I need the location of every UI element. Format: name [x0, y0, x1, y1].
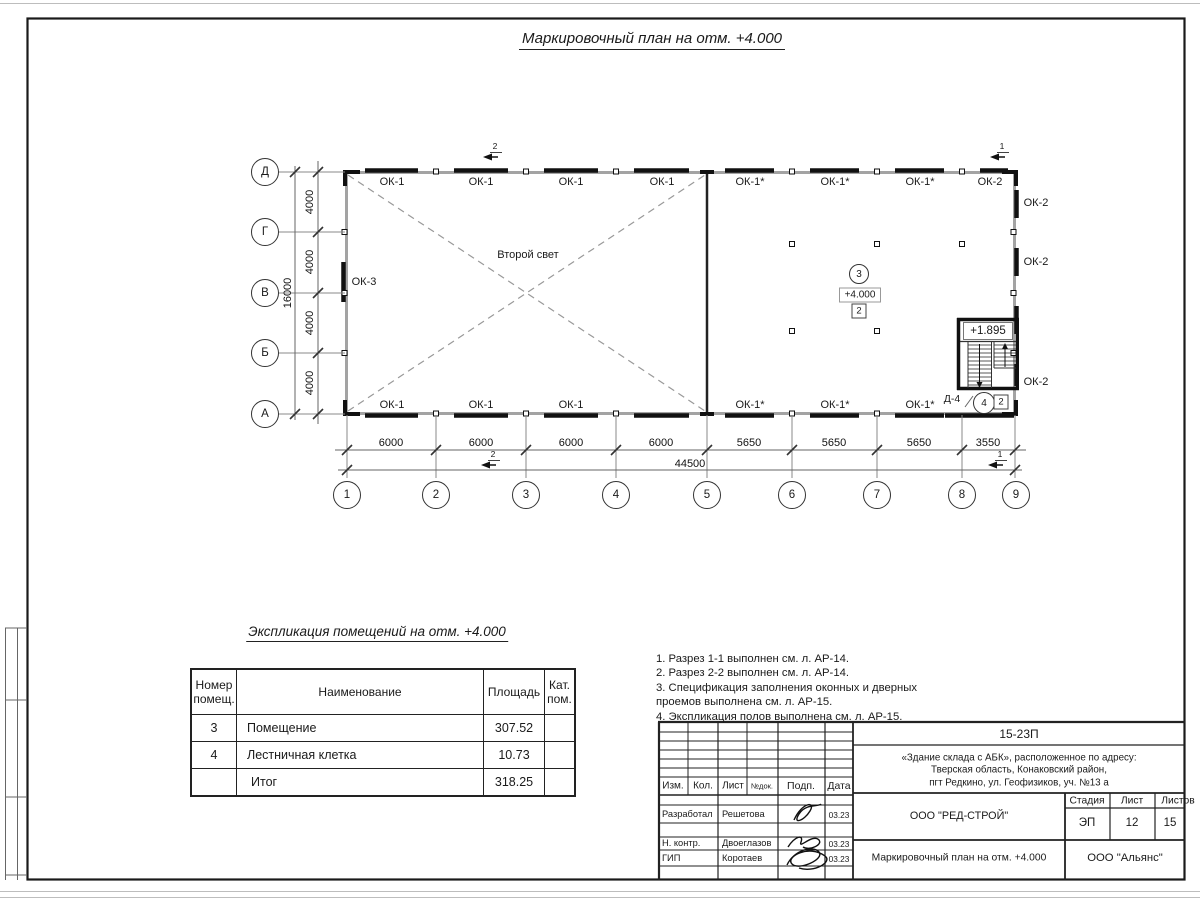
dim-label: 4000: [304, 190, 316, 214]
stair-elevation: +1.895: [963, 322, 1013, 340]
axis-bubble-row: Г: [251, 218, 279, 246]
stamp-role: Н. контр.: [662, 838, 700, 848]
wall-mullions: [342, 169, 1016, 416]
margin-cells: [5, 628, 27, 880]
section-mark-number: 1: [998, 449, 1003, 459]
stamp-name: Двоеглазов: [722, 838, 771, 848]
table-cell: 318.25: [484, 769, 545, 795]
room-number-bubble: 3: [849, 264, 869, 284]
room-category-badge: 2: [994, 395, 1009, 410]
window-label: ОК-1*: [735, 399, 764, 411]
note-line: 2. Разрез 2-2 выполнен см. л. АР-14.: [656, 666, 917, 680]
table-cell: Лестничная клетка: [237, 742, 484, 769]
dim-label: 4000: [304, 250, 316, 274]
stamp-col-header: Дата: [827, 780, 850, 792]
table-cell: 4: [192, 742, 237, 769]
axis-bubble-col: 9: [1002, 481, 1030, 509]
window-label: ОК-1: [650, 176, 675, 188]
window-label: ОК-1: [559, 399, 584, 411]
axis-bubble-col: 3: [512, 481, 540, 509]
stamp-date: 03.23: [829, 854, 850, 864]
section-marks: [481, 153, 1009, 469]
axis-bubble-col: 2: [422, 481, 450, 509]
stamp-object-line: «Здание склада с АБК», расположенное по …: [901, 753, 1136, 764]
axis-bubble-row: В: [251, 279, 279, 307]
dim-ticks: [290, 167, 1020, 475]
dim-label: 5650: [822, 437, 846, 449]
stamp-date: 03.23: [829, 839, 850, 849]
stamp-role: ГИП: [662, 853, 680, 863]
dim-label: 4000: [304, 311, 316, 335]
table-cell: Помещение: [237, 715, 484, 742]
note-line: проемов выполнена см. л. АР-15.: [656, 695, 917, 709]
dim-label: 6000: [649, 437, 673, 449]
dim-total-height: 16000: [282, 278, 294, 309]
table-cell: [545, 715, 574, 742]
dim-label: 6000: [379, 437, 403, 449]
stamp-company: ООО "РЕД-СТРОЙ": [910, 810, 1008, 822]
stamp-date: 03.23: [829, 810, 850, 820]
stamp-sheets-value: 15: [1164, 817, 1177, 829]
stamp-col-header: Лист: [722, 781, 744, 792]
dim-label: 4000: [304, 371, 316, 395]
second-light-label: Второй свет: [497, 249, 558, 261]
stamp-col-header: Изм.: [662, 781, 683, 792]
window-label: ОК-2: [1024, 376, 1049, 388]
note-line: 4. Экспликация полов выполнена см. л. АР…: [656, 710, 917, 724]
axis-bubble-col: 1: [333, 481, 361, 509]
note-line: 3. Спецификация заполнения оконных и две…: [656, 681, 917, 695]
drawing-title: Маркировочный план на отм. +4.000: [519, 30, 785, 50]
stamp-col-header: Кол.: [693, 781, 713, 792]
note-line: 1. Разрез 1-1 выполнен см. л. АР-14.: [656, 652, 917, 666]
axis-bubble-row: Б: [251, 339, 279, 367]
section-mark-number: 2: [491, 449, 496, 459]
window-label: ОК-1*: [905, 176, 934, 188]
table-cell: [192, 769, 237, 795]
stamp-sheet-label: Лист: [1121, 796, 1143, 807]
dim-lines: [295, 161, 1026, 470]
stamp-sheet-value: 12: [1126, 817, 1139, 829]
window-label: ОК-1*: [820, 176, 849, 188]
drawing-sheet: Маркировочный план на отм. +4.000 ОК-1 О…: [0, 0, 1200, 900]
table-cell: Итог: [237, 769, 484, 795]
door-label: Д-4: [944, 393, 960, 405]
window-label: ОК-2: [1024, 197, 1049, 209]
table-header: Наименование: [237, 670, 484, 715]
stamp-col-header: №док.: [751, 782, 773, 791]
table-header: Площадь: [484, 670, 545, 715]
notes-list: 1. Разрез 1-1 выполнен см. л. АР-14. 2. …: [656, 652, 917, 724]
window-label: ОК-1: [559, 176, 584, 188]
stamp-col-header: Подп.: [787, 780, 815, 792]
stamp-object-line: Тверская область, Конаковский район,: [931, 765, 1107, 776]
dim-label: 3550: [976, 437, 1000, 449]
stamp-contractor: ООО "Альянс": [1087, 852, 1163, 864]
table-header: Кат. пом.: [545, 670, 574, 715]
table-cell: 307.52: [484, 715, 545, 742]
window-label: ОК-1*: [820, 399, 849, 411]
axis-bubble-col: 5: [693, 481, 721, 509]
second-light-cross: [348, 175, 705, 411]
dim-label: 5650: [737, 437, 761, 449]
stamp-stage-value: ЭП: [1079, 817, 1096, 829]
window-label: ОК-2: [978, 176, 1003, 188]
table-cell: [545, 769, 574, 795]
room-elevation: +4.000: [839, 288, 881, 303]
wall-corners: [345, 172, 1016, 414]
table-cell: 3: [192, 715, 237, 742]
stamp-object-line: пгт Редкино, ул. Геофизиков, уч. №13 а: [929, 778, 1109, 789]
section-mark-number: 1: [1000, 141, 1005, 151]
plan-walls: [345, 171, 1017, 415]
table-cell: [545, 742, 574, 769]
stamp-sheet-title: Маркировочный план на отм. +4.000: [872, 853, 1047, 864]
axis-bubble-col: 6: [778, 481, 806, 509]
stamp-name: Решетова: [722, 809, 765, 819]
section-mark-number: 2: [493, 141, 498, 151]
window-label: ОК-1*: [905, 399, 934, 411]
window-label: ОК-2: [1024, 256, 1049, 268]
dim-label: 6000: [469, 437, 493, 449]
window-label: ОК-3: [352, 276, 377, 288]
axis-bubble-row: А: [251, 400, 279, 428]
window-label: ОК-1*: [735, 176, 764, 188]
axis-bubble-col: 8: [948, 481, 976, 509]
stamp-stage-label: Стадия: [1069, 796, 1104, 807]
explication-table: Номер помещ. Наименование Площадь Кат. п…: [190, 668, 576, 797]
axis-bubble-row: Д: [251, 158, 279, 186]
table-header: Номер помещ.: [192, 670, 237, 715]
room-number-bubble: 4: [973, 392, 995, 414]
explication-title: Экспликация помещений на отм. +4.000: [246, 624, 508, 642]
stamp-name: Коротаев: [722, 853, 762, 863]
window-label: ОК-1: [469, 399, 494, 411]
dim-label: 5650: [907, 437, 931, 449]
dim-total-width: 44500: [675, 458, 706, 470]
stamp-sheets-label: Листов: [1161, 796, 1194, 807]
stamp-role: Разработал: [662, 809, 713, 819]
table-cell: 10.73: [484, 742, 545, 769]
axis-bubble-col: 7: [863, 481, 891, 509]
dim-label: 6000: [559, 437, 583, 449]
window-label: ОК-1: [380, 399, 405, 411]
axis-bubble-col: 4: [602, 481, 630, 509]
window-label: ОК-1: [380, 176, 405, 188]
room-category-badge: 2: [852, 304, 867, 319]
window-label: ОК-1: [469, 176, 494, 188]
stamp-doc-number: 15-23П: [999, 727, 1038, 741]
